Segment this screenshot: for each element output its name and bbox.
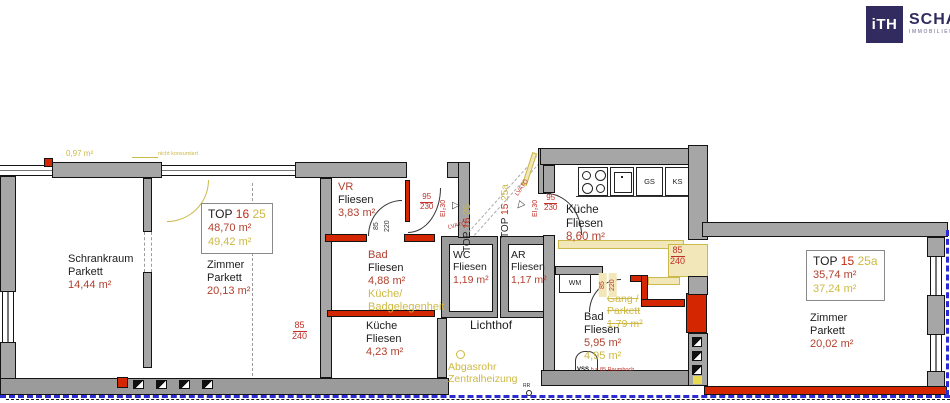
room-area: 4,23 m² <box>366 346 403 359</box>
door-dim-85: 85 <box>599 273 607 297</box>
flue-line2: Zentralheizung <box>448 373 517 385</box>
room-name: AR <box>511 249 547 261</box>
room-area: 3,83 m² <box>338 207 375 220</box>
room-area: 20,02 m² <box>810 338 853 351</box>
wall-segment <box>927 237 945 257</box>
unit-label: TOP <box>500 218 511 238</box>
room-floor: Fliesen <box>453 261 489 273</box>
room-floor: Fliesen <box>566 218 605 232</box>
room-name: Küche <box>566 204 605 218</box>
unit16-door-label: TOP 16 25 <box>462 178 473 252</box>
room-name: Küche <box>366 320 403 333</box>
room-name: Bad <box>584 311 621 324</box>
window-dim-85-240: 85 240 <box>670 246 685 267</box>
washing-machine-box: WM <box>559 274 591 293</box>
vss-note: h = 85 Raumhoch <box>591 367 635 373</box>
room-label-kueche15: Küche Fliesen 8,60 m² <box>566 204 605 245</box>
demolition-marker <box>693 376 702 384</box>
wall-marker <box>202 380 213 389</box>
hidden-wall-dashed <box>151 232 152 272</box>
ks-label: KS <box>672 177 682 186</box>
wm-label: WM <box>569 280 581 287</box>
room-floor: Parkett <box>810 325 853 338</box>
room-name: Bad <box>368 249 444 262</box>
unit-number: 16 <box>236 207 249 221</box>
new-wall-segment <box>686 293 707 333</box>
new-wall-segment <box>44 158 53 167</box>
wall-segment <box>543 165 555 193</box>
room-name: Zimmer <box>207 259 250 272</box>
small-area-label: 0,97 m² <box>66 149 93 158</box>
stove-icon <box>578 167 608 196</box>
unit-number: 15 <box>500 204 511 215</box>
dim-height: 240 <box>670 256 685 266</box>
room-area: 4,88 m² <box>368 275 444 288</box>
room-label-vr: VR Fliesen 3,83 m² <box>338 181 375 220</box>
room-label-lichthof: Lichthof <box>470 318 512 332</box>
unit-area-alt: 49,42 m² <box>208 236 266 250</box>
room-floor: Fliesen <box>368 262 444 275</box>
room-note: Badgelegenheit <box>368 301 444 314</box>
window <box>930 257 942 295</box>
room-floor: Fliesen <box>366 333 403 346</box>
unit-area: 48,70 m² <box>208 222 266 236</box>
unit-number: 15 <box>841 254 854 268</box>
door-triangle-icon: ▽ <box>513 199 526 212</box>
room-label-bad16: Bad Fliesen 4,88 m² Küche/ Badgelegenhei… <box>368 249 444 314</box>
room-name: Zimmer <box>810 312 853 325</box>
room-note: Küche/ <box>368 288 444 301</box>
boundary-line-black <box>6 399 950 400</box>
room-area: 5,95 m² <box>584 337 621 350</box>
dishwasher-box: GS <box>636 167 663 196</box>
wall-segment <box>0 176 16 292</box>
gs-label: GS <box>644 177 655 186</box>
vss-text: VSS <box>577 367 589 373</box>
new-wall-segment <box>117 377 128 388</box>
demolished-wall <box>648 277 680 285</box>
wall-segment <box>702 222 948 237</box>
unit-area-alt: 37,24 m² <box>813 283 878 297</box>
wall-marker <box>692 365 702 375</box>
room-area-alt: 4,95 m² <box>584 350 621 363</box>
wall-segment <box>143 272 152 368</box>
new-wall-segment <box>404 234 435 242</box>
room-label-schrankraum: Schrankraum Parkett 14,44 m² <box>68 253 133 292</box>
room-name: VR <box>338 181 375 194</box>
room-label-zimmer15: Zimmer Parkett 20,02 m² <box>810 312 853 351</box>
door-triangle-icon: ▽ <box>450 202 461 210</box>
door-leaf-new <box>405 180 410 222</box>
new-wall-segment <box>704 386 947 395</box>
dim-height: 230 <box>420 202 433 211</box>
wall-segment <box>688 276 708 295</box>
room-floor: Parkett <box>68 266 133 279</box>
room-label-kueche16: Küche Fliesen 4,23 m² <box>366 320 403 359</box>
room-label-zimmer16: Zimmer Parkett 20,13 m² <box>207 259 250 298</box>
rr-circle-icon <box>526 390 532 396</box>
unit-label: TOP <box>813 254 837 268</box>
new-wall-segment <box>325 234 367 242</box>
flue-line1: Abgasrohr <box>448 361 517 373</box>
unit15-door-label: TOP 15 25a <box>500 160 511 238</box>
wall-marker <box>692 351 702 361</box>
hidden-wall-dashed <box>144 232 145 272</box>
unit-label: TOP <box>462 232 473 252</box>
wall-marker <box>692 337 702 347</box>
floorplan-canvas: iTH SCHANTL IMMOBILIENTREUHAND <box>0 0 950 403</box>
window <box>162 165 295 176</box>
unit-alt: 25a <box>858 254 878 268</box>
room-floor: Fliesen <box>584 324 621 337</box>
room-floor: Fliesen <box>338 194 375 207</box>
door-dim-85: 85 <box>373 214 381 238</box>
room-area: 14,44 m² <box>68 279 133 292</box>
window <box>2 292 14 342</box>
logo-ith-icon: iTH <box>866 6 903 43</box>
dim-height: 240 <box>292 331 307 341</box>
door-dim-220: 220 <box>609 273 617 297</box>
small-note-label: nicht konsumiert <box>158 151 198 157</box>
wall-marker <box>133 380 144 389</box>
demolition-dim-line <box>132 157 158 158</box>
vss-label: VSS h = 85 Raumhoch <box>577 367 634 373</box>
room-label-ar: AR Fliesen 1,17 m² <box>511 249 547 286</box>
fire-rating-label: EI₂30 <box>532 194 540 222</box>
rr-label: RR <box>523 383 530 389</box>
room-label-bad15: Bad Fliesen 5,95 m² 4,95 m² <box>584 311 621 363</box>
room-floor: Fliesen <box>511 261 547 273</box>
wall-segment <box>52 162 162 178</box>
wall-segment <box>540 148 702 165</box>
unit-alt: 25 <box>253 207 266 221</box>
brand-name: SCHANTL <box>909 11 950 29</box>
window <box>930 335 942 371</box>
flue-label: Abgasrohr Zentralheizung <box>448 361 517 386</box>
room-name: Schrankraum <box>68 253 133 266</box>
wall-segment <box>320 178 332 378</box>
room-floor: Parkett <box>207 272 250 285</box>
fire-rating-label: EI₂30 <box>440 194 448 222</box>
logo: iTH SCHANTL IMMOBILIENTREUHAND <box>866 6 950 43</box>
wall-marker <box>179 380 190 389</box>
room-label-wc: WC Fliesen 1,19 m² <box>453 249 489 286</box>
dim-height: 230 <box>544 203 557 212</box>
door-dim-95-230: 95 230 <box>420 193 433 212</box>
room-area: 1,19 m² <box>453 274 489 286</box>
unit-label: TOP <box>208 207 232 221</box>
room-area: 20,13 m² <box>207 285 250 298</box>
unit-box-top16: TOP 16 25 48,70 m² 49,42 m² <box>201 203 273 254</box>
wall-segment <box>295 162 407 178</box>
brand-subtitle: IMMOBILIENTREUHAND <box>909 29 950 35</box>
kitchen-counter-line <box>576 196 690 197</box>
wall-segment <box>927 295 945 335</box>
wall-marker <box>156 380 167 389</box>
wall-segment <box>143 178 152 232</box>
room-area: 8,60 m² <box>566 231 605 245</box>
wall-segment <box>0 378 449 395</box>
fridge-box: KS <box>665 167 690 196</box>
door-dim-220: 220 <box>384 214 392 238</box>
room-area: 1,17 m² <box>511 274 547 286</box>
new-wall-segment <box>641 299 685 307</box>
wall-segment <box>437 318 447 378</box>
unit-area: 35,74 m² <box>813 269 878 283</box>
unit-alt: 25a <box>500 184 511 201</box>
unit-box-top15: TOP 15 25a 35,74 m² 37,24 m² <box>806 250 885 301</box>
property-boundary-line <box>946 230 949 396</box>
flue-circle-icon <box>456 350 465 359</box>
sink-icon <box>610 167 634 196</box>
window-dim-85-240: 85 240 <box>292 321 307 342</box>
unit-alt: 25 <box>462 204 473 215</box>
door-dim-95-230: 95 230 <box>544 194 557 213</box>
property-boundary-line <box>0 395 950 398</box>
